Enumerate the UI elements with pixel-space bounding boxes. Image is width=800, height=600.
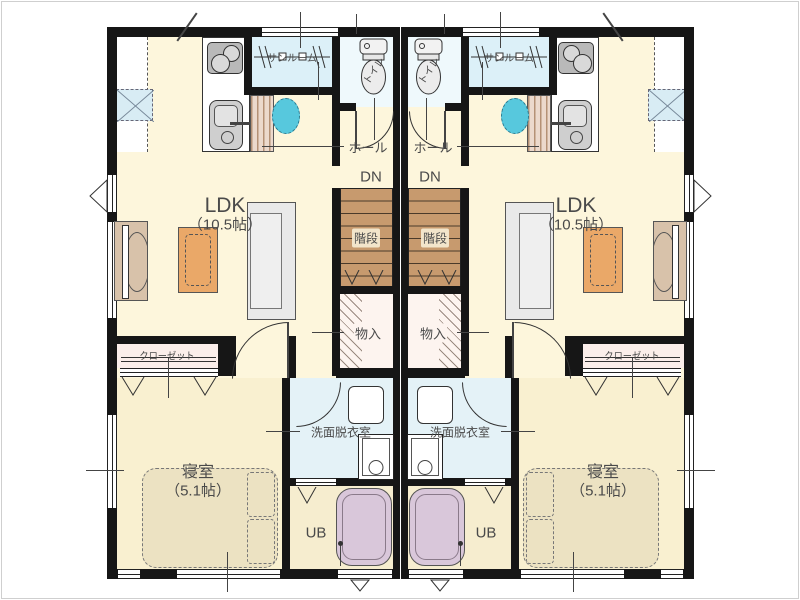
bathtub-left — [336, 488, 392, 566]
exterior-arrow-left — [88, 178, 108, 214]
vent-triangle-left — [350, 579, 370, 592]
stair-direction-arrows-right — [417, 270, 457, 286]
wall-hall-right — [461, 111, 469, 166]
table-left — [178, 227, 218, 293]
wall-bedroom-washroom-left — [282, 378, 290, 572]
label-closet-left: クローゼット — [139, 348, 194, 363]
folding-door-bath-right — [484, 487, 504, 505]
dimension-tick — [500, 12, 501, 48]
folding-door-closet-left — [120, 377, 218, 397]
leader-storage-left — [312, 332, 344, 333]
wall-storage-left — [332, 294, 340, 376]
refrigerator-space-left — [116, 89, 153, 121]
washbasin-left — [348, 386, 384, 424]
washing-machine-right — [407, 434, 443, 480]
unit-separation-line — [400, 27, 401, 579]
window-bedroom-right — [684, 415, 694, 508]
leader-closet-left — [168, 358, 169, 398]
leader-hall-left — [262, 146, 344, 147]
fan-icon-left — [272, 98, 300, 134]
label-bedroom-size-left: （5.1帖） — [165, 480, 231, 501]
door-leaf-bedroom-left — [287, 322, 289, 378]
label-bedroom-right: 寝室 — [587, 458, 619, 482]
tv-board-right — [653, 221, 687, 301]
leader-sunroom-left — [318, 62, 319, 100]
wall-closet-top-right — [575, 336, 691, 344]
vent-triangle-right — [430, 579, 450, 592]
sunroom-step-left — [250, 95, 274, 152]
wall-stairs-bottom-right — [408, 286, 469, 294]
exterior-arrow-right — [693, 178, 713, 214]
wall-toilet-stub-right — [445, 103, 469, 111]
dimension-tick — [227, 552, 228, 592]
window-bedroom-left — [107, 415, 117, 508]
label-dn-left: DN — [360, 169, 382, 186]
dimension-tick — [86, 470, 124, 471]
label-ldk-size-right: （10.5帖） — [539, 214, 613, 235]
label-closet-right: クローゼット — [604, 348, 659, 363]
label-bath-left: UB — [306, 525, 327, 542]
window-corner-right — [661, 569, 683, 579]
wall-storage-right — [461, 294, 469, 376]
leader-washroom-left — [266, 431, 300, 432]
label-hall-right: ホール — [413, 138, 452, 157]
refrigerator-space-right — [648, 89, 685, 121]
shower-mark-left — [340, 544, 341, 566]
dimension-tick — [444, 14, 445, 34]
window-sunroom-right — [463, 27, 539, 37]
floor-plan: LDK （10.5帖） LDK （10.5帖） 寝室 （5.1帖） 寝室 （5.… — [0, 0, 800, 600]
dimension-tick — [356, 14, 357, 34]
label-storage-right: 物入 — [419, 324, 447, 343]
wall-toilet-stub-left — [332, 103, 356, 111]
wall-sunroom-bottom-right — [461, 87, 557, 95]
leader-sunroom-right — [482, 62, 483, 100]
wall-hall-left — [332, 111, 340, 166]
folding-door-bath-left — [297, 487, 317, 505]
door-leaf-bedroom-right — [512, 322, 514, 378]
stair-direction-arrows-left — [344, 270, 384, 286]
leader-hall-right — [457, 146, 539, 147]
label-dn-right: DN — [419, 169, 441, 186]
label-storage-left: 物入 — [354, 324, 382, 343]
table-right — [583, 227, 623, 293]
stove-icon-left — [207, 42, 243, 74]
dimension-tick — [573, 552, 574, 592]
label-hall-left: ホール — [348, 138, 387, 157]
wall-toilet-left — [332, 27, 340, 111]
wall-sunroom-left — [244, 27, 252, 95]
shower-head-left — [338, 541, 343, 546]
wall-toilet-right — [461, 27, 469, 111]
wall-stairs-bottom-left — [332, 286, 393, 294]
washbasin-right — [417, 386, 453, 424]
shower-mark-right — [460, 544, 461, 566]
window-bedroom-bottom-left — [177, 569, 280, 579]
bath-door-opening-right — [465, 478, 505, 486]
wall-stairs-right — [461, 188, 469, 294]
closet-opening-left — [120, 368, 218, 377]
bathtub-right — [409, 488, 465, 566]
label-washroom-left: 洗面脱衣室 — [311, 424, 371, 441]
window-bath-left — [338, 569, 392, 579]
label-stairs-right: 階段 — [421, 229, 449, 248]
kitchen-sink-icon-left — [209, 100, 243, 150]
fan-icon-right — [501, 98, 529, 134]
wall-washroom-top-right — [408, 370, 465, 378]
label-washroom-right: 洗面脱衣室 — [430, 424, 490, 441]
label-sunroom-left: サンルーム — [267, 50, 317, 65]
wall-closet-top-left — [110, 336, 226, 344]
wall-bedroom-washroom-right — [511, 378, 519, 572]
label-bedroom-size-right: （5.1帖） — [570, 480, 636, 501]
window-bath-right — [409, 569, 463, 579]
wall-sunroom-bottom-left — [244, 87, 340, 95]
window-corner-left — [118, 569, 140, 579]
wall-corridor-stub-left — [288, 336, 296, 378]
dimension-tick — [677, 470, 715, 471]
tv-board-left — [114, 221, 148, 301]
wall-sunroom-right — [549, 27, 557, 95]
label-stairs-left: 階段 — [352, 229, 380, 248]
bath-door-opening-left — [296, 478, 336, 486]
wall-washroom-top-left — [336, 370, 393, 378]
sunroom-step-right — [527, 95, 551, 152]
label-sunroom-right: サンルーム — [484, 50, 534, 65]
leader-storage-right — [457, 332, 489, 333]
label-bath-right: UB — [476, 525, 497, 542]
washing-machine-left — [358, 434, 394, 480]
kitchen-sink-icon-right — [558, 100, 592, 150]
leader-closet-right — [632, 358, 633, 398]
stove-icon-right — [558, 42, 594, 74]
leader-toilet-left — [374, 98, 375, 140]
dimension-tick — [300, 12, 301, 48]
shower-head-right — [458, 541, 463, 546]
wall-stairs-left — [332, 188, 340, 294]
leader-toilet-right — [426, 98, 427, 140]
leader-washroom-right — [501, 431, 535, 432]
label-ldk-size-left: （10.5帖） — [188, 214, 262, 235]
label-bedroom-left: 寝室 — [182, 458, 214, 482]
